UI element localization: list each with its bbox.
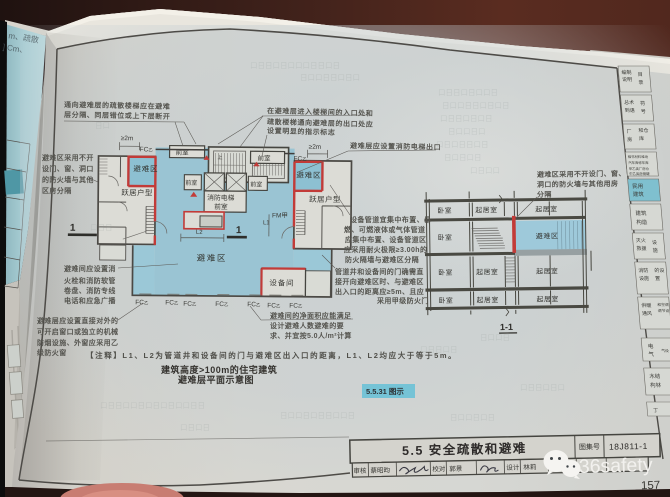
svg-text:卧室: 卧室 bbox=[438, 233, 453, 242]
svg-text:日口口日: 日口口日 bbox=[480, 333, 510, 342]
svg-text:≥2m: ≥2m bbox=[121, 135, 134, 142]
svg-text:起居室: 起居室 bbox=[536, 266, 558, 275]
svg-text:号: 号 bbox=[641, 109, 647, 115]
svg-text:蔡昭昀: 蔡昭昀 bbox=[370, 465, 390, 474]
svg-text:通风: 通风 bbox=[642, 310, 653, 317]
svg-text:起居室: 起居室 bbox=[537, 294, 559, 303]
svg-text:建筑高度>100m的住宅建筑: 建筑高度>100m的住宅建筑 bbox=[161, 364, 277, 375]
svg-text:避难层应设置直接对外的: 避难层应设置直接对外的 bbox=[36, 316, 118, 325]
svg-text:消防电梯: 消防电梯 bbox=[207, 193, 234, 202]
svg-text:1: 1 bbox=[70, 223, 76, 234]
svg-text:可开启窗口或独立的机械: 可开启窗口或独立的机械 bbox=[37, 327, 118, 336]
svg-text:采用甲级防火门: 采用甲级防火门 bbox=[376, 296, 429, 305]
svg-text:18J811-1: 18J811-1 bbox=[609, 441, 648, 452]
svg-text:日口日口日: 日口日口日 bbox=[444, 153, 482, 162]
svg-text:设计避难人数避难的要: 设计避难人数避难的要 bbox=[270, 321, 344, 330]
svg-text:防火隔墙与避难区分隔: 防火隔墙与避难区分隔 bbox=[345, 255, 419, 264]
svg-text:灭火: 灭火 bbox=[636, 238, 647, 244]
svg-text:构造: 构造 bbox=[636, 218, 648, 226]
svg-text:口日口口: 口日口口 bbox=[470, 166, 500, 175]
svg-text:编制: 编制 bbox=[621, 69, 632, 76]
svg-text:木结: 木结 bbox=[649, 372, 661, 380]
svg-text:口日日口日口日: 口日日口日口日 bbox=[440, 114, 493, 123]
svg-text:汽车库修车库: 汽车库修车库 bbox=[628, 160, 649, 165]
svg-text:FC乙: FC乙 bbox=[165, 300, 179, 307]
svg-text:构林: 构林 bbox=[650, 381, 662, 389]
svg-text:FC乙: FC乙 bbox=[135, 299, 149, 306]
svg-text:电话和应急广播: 电话和应急广播 bbox=[64, 296, 116, 305]
svg-text:求、并宜按5.0人/m²计算: 求、并宜按5.0人/m²计算 bbox=[270, 331, 352, 340]
svg-text:设计: 设计 bbox=[506, 463, 520, 472]
svg-text:房: 房 bbox=[627, 136, 633, 143]
svg-text:跃居户型: 跃居户型 bbox=[309, 194, 341, 204]
svg-text:校对: 校对 bbox=[432, 464, 446, 473]
svg-text:5.5 安全疏散和避难: 5.5 安全疏散和避难 bbox=[402, 440, 527, 458]
svg-text:救援: 救援 bbox=[636, 245, 647, 252]
svg-text:录: 录 bbox=[638, 79, 644, 86]
svg-text:1-1: 1-1 bbox=[500, 322, 513, 332]
svg-text:区房分隔: 区房分隔 bbox=[42, 186, 72, 195]
svg-text:应采用耐火极限≥3.00h的: 应采用耐火极限≥3.00h的 bbox=[344, 245, 427, 254]
svg-text:供暖: 供暖 bbox=[641, 302, 652, 309]
svg-text:和空调: 和空调 bbox=[657, 302, 669, 307]
svg-text:起居室: 起居室 bbox=[476, 267, 498, 276]
svg-text:调节设: 调节设 bbox=[658, 308, 670, 313]
svg-text:设备管道宜集中布置、易: 设备管道宜集中布置、易 bbox=[350, 215, 431, 224]
svg-text:出入口的距离应≥5m、且应: 出入口的距离应≥5m、且应 bbox=[335, 287, 424, 296]
svg-text:避难间的净面积应能满足: 避难间的净面积应能满足 bbox=[269, 311, 352, 320]
svg-text:防烟设施、外窗应采用乙: 防烟设施、外窗应采用乙 bbox=[37, 338, 118, 347]
svg-text:≥2m: ≥2m bbox=[309, 144, 322, 151]
svg-text:燃、可燃液体或气体管道: 燃、可燃液体或气体管道 bbox=[343, 225, 425, 234]
svg-text:气设: 气设 bbox=[661, 348, 669, 353]
svg-text:日口口日口日日口口日: 日口口日口日日口口日 bbox=[280, 411, 355, 420]
svg-text:口日日口日: 口日日口日 bbox=[420, 345, 458, 354]
svg-text:口日日: 口日日 bbox=[90, 223, 113, 232]
svg-text:避难层平面示意图: 避难层平面示意图 bbox=[178, 374, 254, 385]
svg-text:前室: 前室 bbox=[258, 153, 272, 162]
svg-text:管道井和设备间的门确需直: 管道井和设备间的门确需直 bbox=[335, 267, 424, 276]
svg-text:避难区采用不开: 避难区采用不开 bbox=[41, 153, 94, 162]
svg-text:符: 符 bbox=[640, 100, 646, 107]
svg-text:1: 1 bbox=[236, 225, 242, 236]
svg-text:日口口日日口日口: 日口口日日口日口 bbox=[300, 73, 360, 82]
svg-text:图集号: 图集号 bbox=[579, 442, 600, 451]
svg-text:36safety: 36safety bbox=[579, 454, 654, 478]
svg-text:置: 置 bbox=[655, 276, 661, 282]
svg-text:口日口日日口日: 口日口日日口日 bbox=[436, 140, 489, 149]
svg-text:卧室: 卧室 bbox=[438, 268, 453, 277]
svg-text:避难间应设置消: 避难间应设置消 bbox=[63, 264, 116, 273]
svg-text:FC乙: FC乙 bbox=[183, 301, 197, 308]
svg-text:5.5.31 图示: 5.5.31 图示 bbox=[366, 387, 404, 396]
svg-text:厂: 厂 bbox=[626, 129, 632, 135]
svg-text:到语: 到语 bbox=[624, 107, 635, 114]
svg-text:建筑: 建筑 bbox=[635, 209, 647, 217]
svg-text:口日日口日口: 口日日口日口 bbox=[520, 383, 565, 392]
svg-text:设门、窗、洞口: 设门、窗、洞口 bbox=[42, 164, 94, 173]
svg-text:设备间: 设备间 bbox=[269, 277, 294, 287]
svg-text:跃居户型: 跃居户型 bbox=[121, 187, 153, 197]
svg-text:口日日口日口口日: 口日日口日口口日 bbox=[438, 88, 498, 97]
svg-text:林莉: 林莉 bbox=[523, 462, 537, 471]
svg-text:FC乙: FC乙 bbox=[140, 146, 154, 153]
svg-text:避难区: 避难区 bbox=[536, 231, 559, 240]
svg-text:级防火窗: 级防火窗 bbox=[36, 348, 67, 357]
svg-text:丁: 丁 bbox=[653, 408, 659, 414]
svg-text:前室: 前室 bbox=[214, 202, 228, 211]
svg-text:卧室: 卧室 bbox=[439, 296, 454, 305]
svg-text:FC乙: FC乙 bbox=[267, 302, 281, 309]
svg-text:设: 设 bbox=[652, 239, 658, 246]
svg-text:分隔: 分隔 bbox=[537, 190, 552, 199]
svg-text:口日口日: 口日口日 bbox=[180, 423, 210, 432]
svg-text:卷盘、消防专线: 卷盘、消防专线 bbox=[64, 286, 116, 295]
svg-text:卧室: 卧室 bbox=[437, 206, 452, 215]
svg-text:库: 库 bbox=[639, 135, 645, 142]
svg-text:总术: 总术 bbox=[624, 99, 635, 106]
svg-text:的防火墙与其他: 的防火墙与其他 bbox=[42, 175, 94, 184]
svg-text:日口: 日口 bbox=[95, 121, 110, 130]
svg-text:口日日口日口口口日日口日: 口日日口日口口口日日口日 bbox=[250, 61, 340, 70]
svg-text:FC乙: FC乙 bbox=[247, 301, 261, 308]
svg-text:消防: 消防 bbox=[638, 267, 649, 274]
svg-text:建筑: 建筑 bbox=[633, 190, 645, 198]
svg-text:施: 施 bbox=[652, 247, 658, 254]
svg-text:说明: 说明 bbox=[622, 76, 633, 83]
svg-text:设施: 设施 bbox=[639, 275, 650, 282]
svg-text:157: 157 bbox=[641, 480, 661, 493]
svg-text:接开向避难区时、与避难区: 接开向避难区时、与避难区 bbox=[335, 277, 424, 286]
svg-text:中乙类房储罐: 中乙类房储罐 bbox=[629, 171, 650, 176]
svg-text:日口口日日口日口日: 日口口日日口日口日 bbox=[442, 101, 510, 110]
svg-text:口日日口口日口日口日口口日日: 口日日口口日口日口日口口日日 bbox=[100, 401, 205, 410]
svg-text:日口口日口: 日口口日口 bbox=[448, 127, 486, 136]
svg-text:起居室: 起居室 bbox=[475, 205, 497, 214]
svg-text:起居室: 起居室 bbox=[477, 295, 499, 304]
svg-text:日口口日口日: 日口口日口日 bbox=[450, 413, 495, 422]
svg-text:【注释】L1、L2为管道井和设备间的门与避难区出入口的距离，: 【注释】L1、L2为管道井和设备间的门与避难区出入口的距离，L1、L2均应大于等… bbox=[86, 350, 457, 360]
svg-text:FC乙: FC乙 bbox=[215, 301, 229, 308]
svg-text:FC乙: FC乙 bbox=[289, 303, 303, 310]
svg-text:郭景: 郭景 bbox=[449, 464, 463, 473]
svg-text:FM甲: FM甲 bbox=[272, 211, 288, 219]
svg-text:甲乙类厂房仓: 甲乙类厂房仓 bbox=[629, 166, 650, 171]
svg-text:的设: 的设 bbox=[654, 267, 665, 274]
svg-text:前室: 前室 bbox=[185, 179, 197, 187]
svg-text:L2: L2 bbox=[196, 230, 203, 236]
svg-text:目: 目 bbox=[638, 72, 644, 78]
svg-text:上: 上 bbox=[218, 154, 223, 161]
svg-text:应集中布置、设备管道区: 应集中布置、设备管道区 bbox=[345, 235, 426, 244]
svg-text:民用: 民用 bbox=[632, 183, 644, 190]
svg-text:起居室: 起居室 bbox=[535, 204, 557, 213]
svg-text:和仓: 和仓 bbox=[638, 127, 649, 134]
svg-text:避难区: 避难区 bbox=[133, 163, 158, 173]
svg-text:前室: 前室 bbox=[250, 180, 262, 188]
svg-text:FC乙: FC乙 bbox=[294, 156, 308, 163]
svg-text:火栓和消防软管: 火栓和消防软管 bbox=[64, 276, 116, 285]
svg-text:审核: 审核 bbox=[353, 466, 367, 475]
svg-text:相邻材料堆场: 相邻材料堆场 bbox=[627, 154, 648, 159]
svg-text:避难区: 避难区 bbox=[197, 253, 227, 263]
